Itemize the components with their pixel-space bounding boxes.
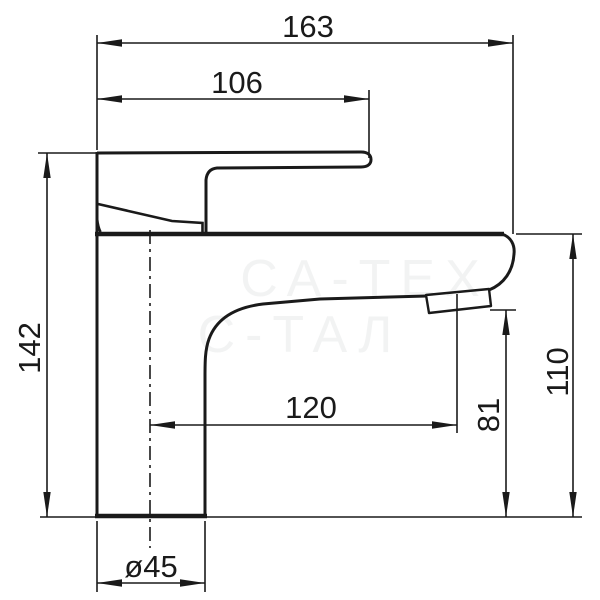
dim-label-106: 106	[211, 65, 263, 100]
spout-nose	[489, 234, 514, 290]
dim-label-163: 163	[282, 9, 334, 44]
handle-wedge-front	[97, 203, 101, 232]
dim-overall-length: 163	[97, 9, 513, 234]
dim-body-height: 110	[516, 234, 582, 517]
technical-drawing: СА-ТЕХ С-ТАЛ 163	[0, 0, 600, 600]
watermark-line1: СА-ТЕХ	[240, 250, 490, 308]
handle-lever	[97, 152, 371, 233]
faucet-dimension-drawing: СА-ТЕХ С-ТАЛ 163	[0, 0, 600, 600]
dim-overall-height: 142	[12, 153, 97, 517]
dim-label-120: 120	[285, 390, 337, 425]
dim-base-diameter: ø45	[97, 521, 205, 592]
dim-label-110: 110	[540, 347, 575, 396]
dim-label-142: 142	[12, 322, 47, 374]
dim-label-d45: ø45	[124, 549, 177, 584]
handle-wedge-top	[98, 204, 203, 233]
dim-label-81: 81	[471, 398, 506, 432]
dim-handle-length: 106	[97, 65, 369, 158]
watermark: СА-ТЕХ С-ТАЛ	[198, 250, 490, 364]
dim-aerator-height: 81	[471, 310, 516, 517]
